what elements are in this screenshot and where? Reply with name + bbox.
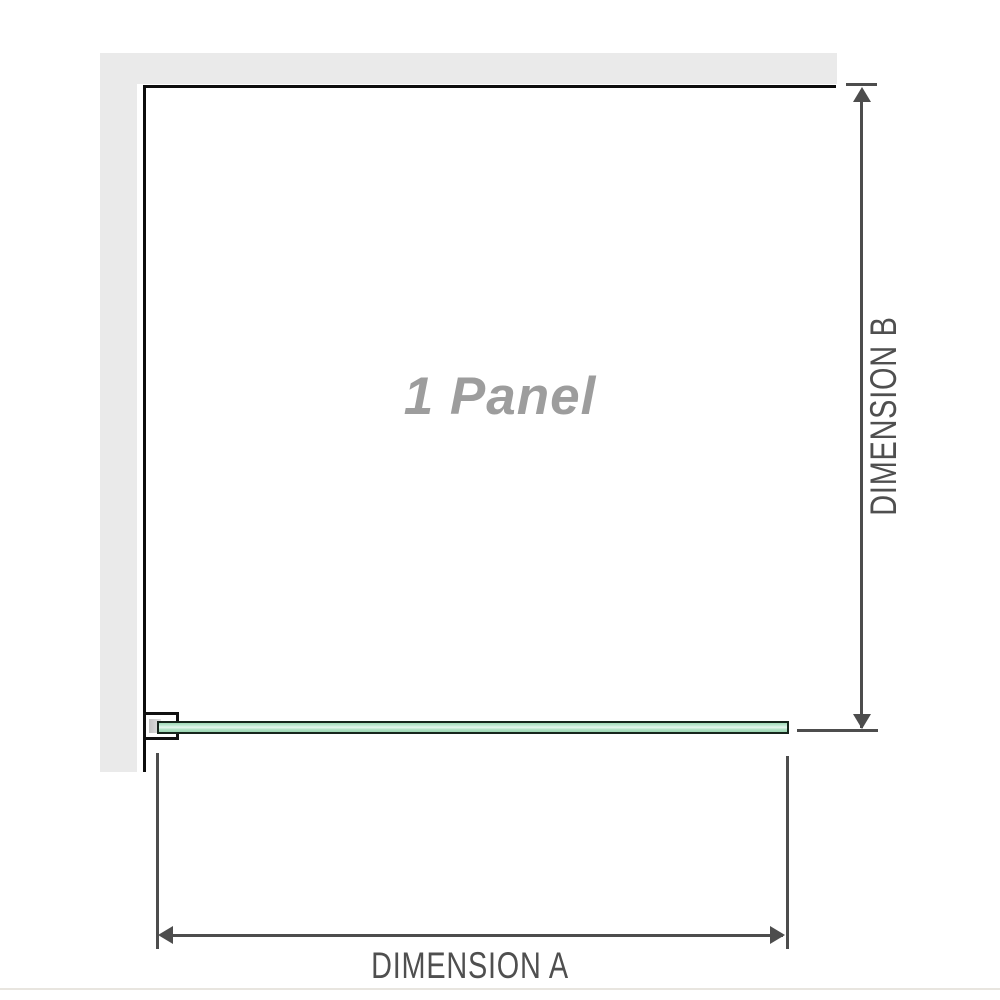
arrow-up-icon [853, 87, 871, 102]
arrow-down-icon [853, 714, 871, 729]
panel-label: 1 Panel [300, 362, 700, 432]
panel-outline-left-edge [143, 85, 146, 772]
arrow-left-icon [158, 926, 173, 944]
page-divider-line [0, 988, 1000, 990]
dimension-a-line [162, 934, 783, 937]
panel-outline-top-edge [143, 85, 836, 88]
dimension-diagram: 1 Panel DIMENSION B DIMENSION A [0, 0, 1000, 1000]
glass-panel-bar [157, 721, 789, 734]
dimension-a-label: DIMENSION A [314, 946, 626, 986]
arrow-right-icon [770, 926, 785, 944]
dimension-a-left-extension-line [156, 753, 159, 949]
dimension-a-right-extension-line [786, 756, 789, 949]
dimension-b-top-tick [846, 83, 877, 86]
dimension-b-label: DIMENSION B [864, 299, 904, 533]
wall-top [100, 53, 837, 84]
dimension-b-bottom-tick [797, 729, 878, 732]
wall-left [100, 53, 137, 772]
